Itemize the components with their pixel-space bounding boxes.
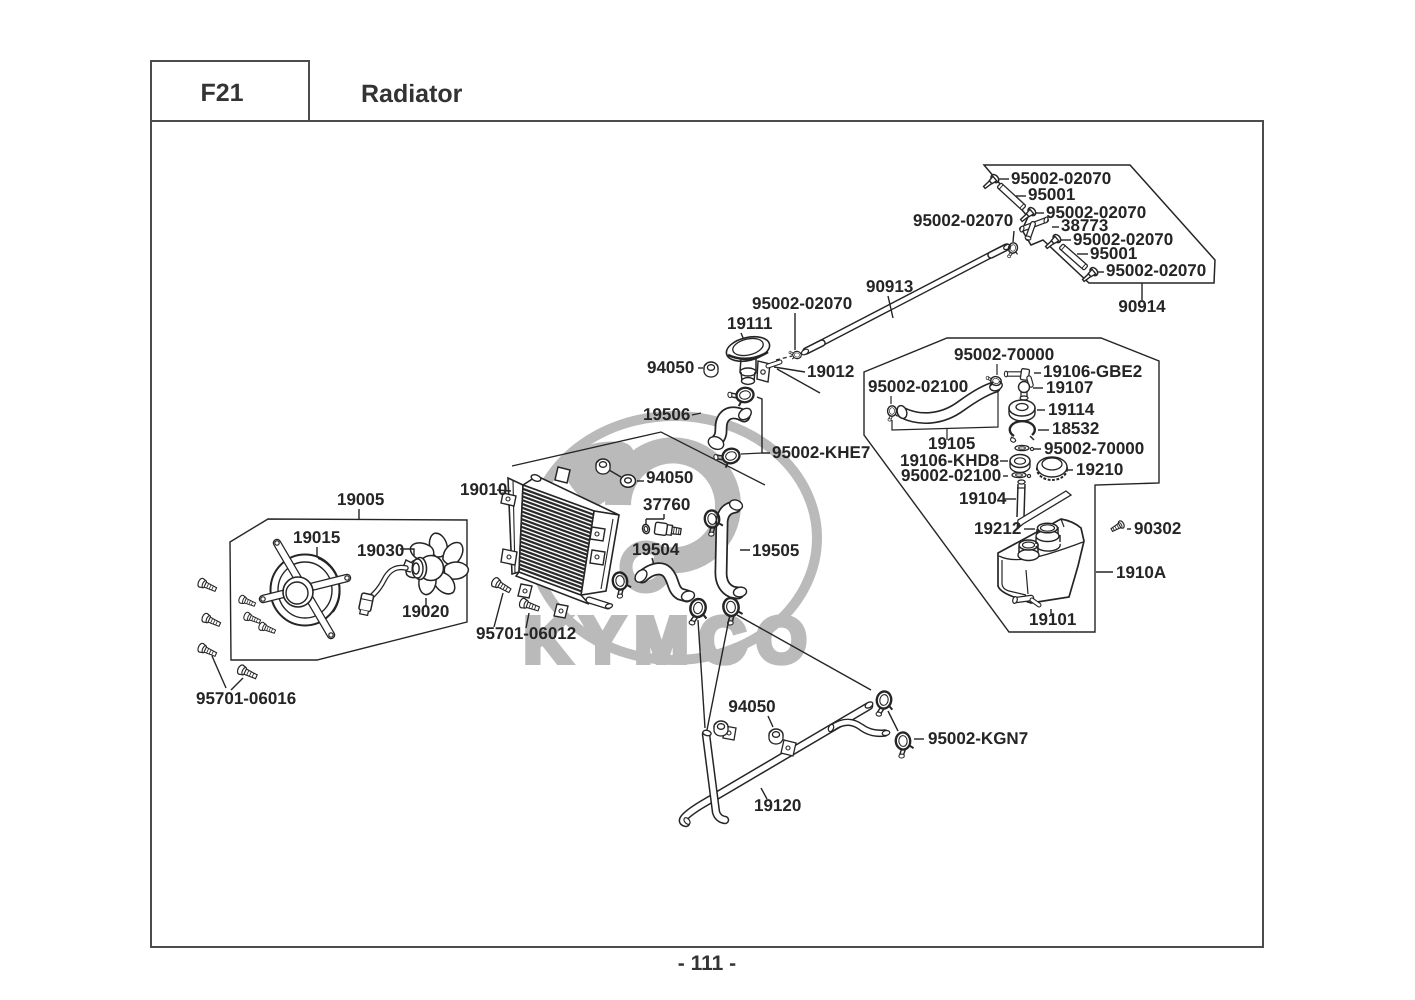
svg-text:19101: 19101 [1029, 610, 1076, 629]
svg-text:37760: 37760 [643, 495, 690, 514]
svg-text:19107: 19107 [1046, 378, 1093, 397]
svg-text:19005: 19005 [337, 490, 384, 509]
svg-text:19506: 19506 [643, 405, 690, 424]
svg-text:95001: 95001 [1028, 185, 1075, 204]
svg-text:19015: 19015 [293, 528, 340, 547]
svg-text:18532: 18532 [1052, 419, 1099, 438]
svg-text:95701-06016: 95701-06016 [196, 689, 296, 708]
svg-text:19111: 19111 [727, 314, 772, 333]
svg-text:95002-02070: 95002-02070 [752, 294, 852, 313]
svg-text:95002-02100: 95002-02100 [901, 466, 1001, 485]
svg-text:19030: 19030 [357, 541, 404, 560]
svg-text:90302: 90302 [1134, 519, 1181, 538]
svg-text:1910A: 1910A [1116, 563, 1166, 582]
svg-text:19504: 19504 [632, 540, 680, 559]
svg-text:94050: 94050 [647, 358, 694, 377]
svg-text:19012: 19012 [807, 362, 854, 381]
svg-text:95701-06012: 95701-06012 [476, 624, 576, 643]
svg-text:90914: 90914 [1118, 297, 1166, 316]
svg-text:95002-KHE7: 95002-KHE7 [772, 443, 870, 462]
svg-text:19212: 19212 [974, 519, 1021, 538]
svg-text:19210: 19210 [1076, 460, 1123, 479]
svg-text:94050: 94050 [646, 468, 693, 487]
svg-text:95002-02070: 95002-02070 [1106, 261, 1206, 280]
svg-text:Radiator: Radiator [361, 80, 463, 108]
svg-text:F21: F21 [200, 79, 243, 107]
svg-text:95002-70000: 95002-70000 [954, 345, 1054, 364]
svg-text:95002-02100: 95002-02100 [868, 377, 968, 396]
svg-text:19104: 19104 [959, 489, 1007, 508]
svg-text:90913: 90913 [866, 277, 913, 296]
svg-text:95002-02070: 95002-02070 [913, 211, 1013, 230]
svg-text:- 111 -: - 111 - [678, 952, 736, 975]
svg-text:19505: 19505 [752, 541, 799, 560]
svg-text:19120: 19120 [754, 796, 801, 815]
svg-text:95002-KGN7: 95002-KGN7 [928, 729, 1028, 748]
svg-text:95002-70000: 95002-70000 [1044, 439, 1144, 458]
svg-text:19114: 19114 [1048, 400, 1095, 419]
svg-text:94050: 94050 [728, 697, 775, 716]
